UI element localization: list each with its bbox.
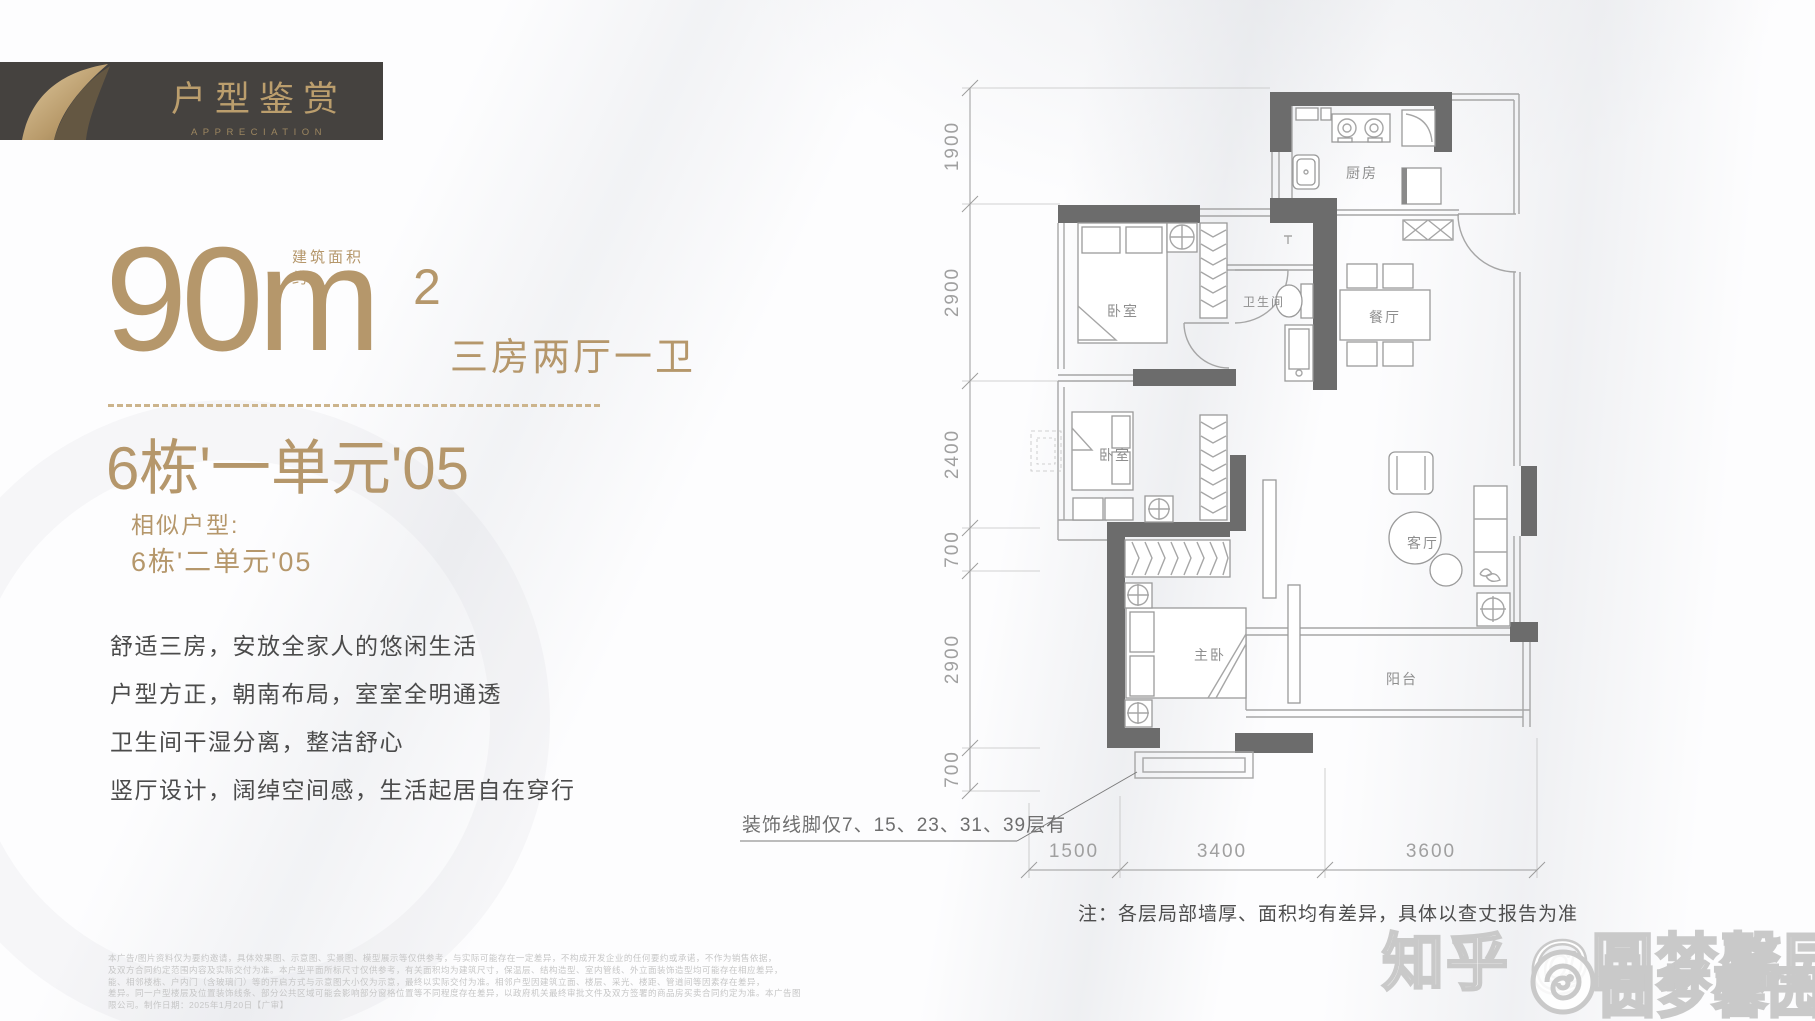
dim-label: 3600 bbox=[1406, 841, 1456, 862]
bedroom2-furniture bbox=[1031, 412, 1173, 522]
layout-type: 三房两厅一卫 bbox=[450, 326, 696, 381]
dim-label: 1900 bbox=[942, 121, 963, 171]
room-label-bedroom: 卧室 bbox=[1107, 303, 1139, 319]
bedroom1-furniture bbox=[1078, 223, 1197, 343]
banner-subtitle: APPRECIATION bbox=[171, 127, 347, 138]
disclaimer-line: 能、相邻楼栋、户内门（含玻璃门）等的开启方式与示意图大小仅为示意，最终以实际交付… bbox=[108, 977, 1508, 989]
floor-plan: 1900 2900 2400 700 2900 700 1500 3400 36… bbox=[740, 78, 1570, 888]
room-label-bedroom2: 卧室 bbox=[1099, 447, 1131, 463]
feature-item: 舒适三房，安放全家人的悠闲生活 bbox=[110, 622, 576, 670]
room-label-living: 客厅 bbox=[1407, 535, 1439, 551]
decoration-note: 装饰线脚仅7、15、23、31、39层有 bbox=[740, 772, 1137, 841]
similar-type-label: 相似户型: bbox=[131, 506, 239, 540]
feature-item: 户型方正，朝南布局，室室全明通透 bbox=[110, 670, 576, 718]
disclaimer-line: 限公司。制作日期：2025年1月20日【广审】 bbox=[108, 1000, 1508, 1012]
unit-title: 6栋'一单元'05 bbox=[106, 420, 469, 507]
dim-label: 700 bbox=[942, 530, 963, 568]
title-banner: 户型鉴赏 APPRECIATION bbox=[0, 62, 383, 140]
decoration-note-text: 装饰线脚仅7、15、23、31、39层有 bbox=[742, 814, 1066, 836]
banner-title: 户型鉴赏 bbox=[171, 71, 347, 122]
feature-item: 竖厅设计，阔绰空间感，生活起居自在穿行 bbox=[110, 766, 576, 814]
disclaimer-line: 及双方合同约定范围内容及实际交付为准。本户型平面所标尺寸仅供参考，有关面积均为建… bbox=[108, 965, 1508, 977]
snail-spiral-icon bbox=[1522, 942, 1604, 1020]
area-value: 90m bbox=[105, 217, 375, 382]
similar-type-value: 6栋'二单元'05 bbox=[131, 540, 312, 579]
living-room-furniture bbox=[1263, 452, 1510, 703]
feature-item: 卫生间干湿分离，整洁舒心 bbox=[110, 718, 576, 766]
disclaimer: 本广告/图片资料仅为要约邀请，具体效果图、示意图、实景图、模型展示等仅供参考，与… bbox=[108, 953, 1508, 1012]
dashed-divider bbox=[108, 404, 600, 407]
dim-label: 1500 bbox=[1049, 841, 1099, 862]
dim-label: 2400 bbox=[942, 429, 963, 479]
area-superscript: 2 bbox=[413, 258, 441, 316]
master-bedroom-furniture bbox=[1125, 583, 1246, 727]
room-label-master: 主卧 bbox=[1194, 647, 1226, 663]
dim-label: 2900 bbox=[942, 634, 963, 684]
dim-label: 3400 bbox=[1197, 841, 1247, 862]
area-headline: 90m 建筑面积约 2 三房两厅一卫 bbox=[105, 226, 375, 376]
room-label-balcony: 阳台 bbox=[1386, 671, 1418, 687]
dimension-chain-horizontal: 1500 3400 3600 bbox=[1021, 738, 1545, 878]
disclaimer-line: 差异。同一户型楼层及位置装饰线条、部分公共区域可能会影响部分窗格位置等不同程度存… bbox=[108, 988, 1508, 1000]
banner-text: 户型鉴赏 APPRECIATION bbox=[171, 71, 347, 138]
disclaimer-line: 本广告/图片资料仅为要约邀请，具体效果图、示意图、实景图、模型展示等仅供参考，与… bbox=[108, 953, 1508, 965]
watermark-brand: 圆梦馨园 bbox=[1600, 948, 1815, 1021]
room-label-bathroom: 卫生间 bbox=[1243, 295, 1285, 309]
dim-label: 700 bbox=[942, 750, 963, 788]
area-note: 建筑面积约 bbox=[292, 246, 375, 288]
room-label-kitchen: 厨房 bbox=[1346, 165, 1378, 181]
feature-list: 舒适三房，安放全家人的悠闲生活 户型方正，朝南布局，室室全明通透 卫生间干湿分离… bbox=[110, 622, 576, 814]
dim-label: 2900 bbox=[942, 267, 963, 317]
room-label-dining: 餐厅 bbox=[1369, 309, 1401, 325]
poster: 户型鉴赏 APPRECIATION 90m 建筑面积约 2 三房两厅一卫 6栋'… bbox=[0, 0, 1815, 1021]
